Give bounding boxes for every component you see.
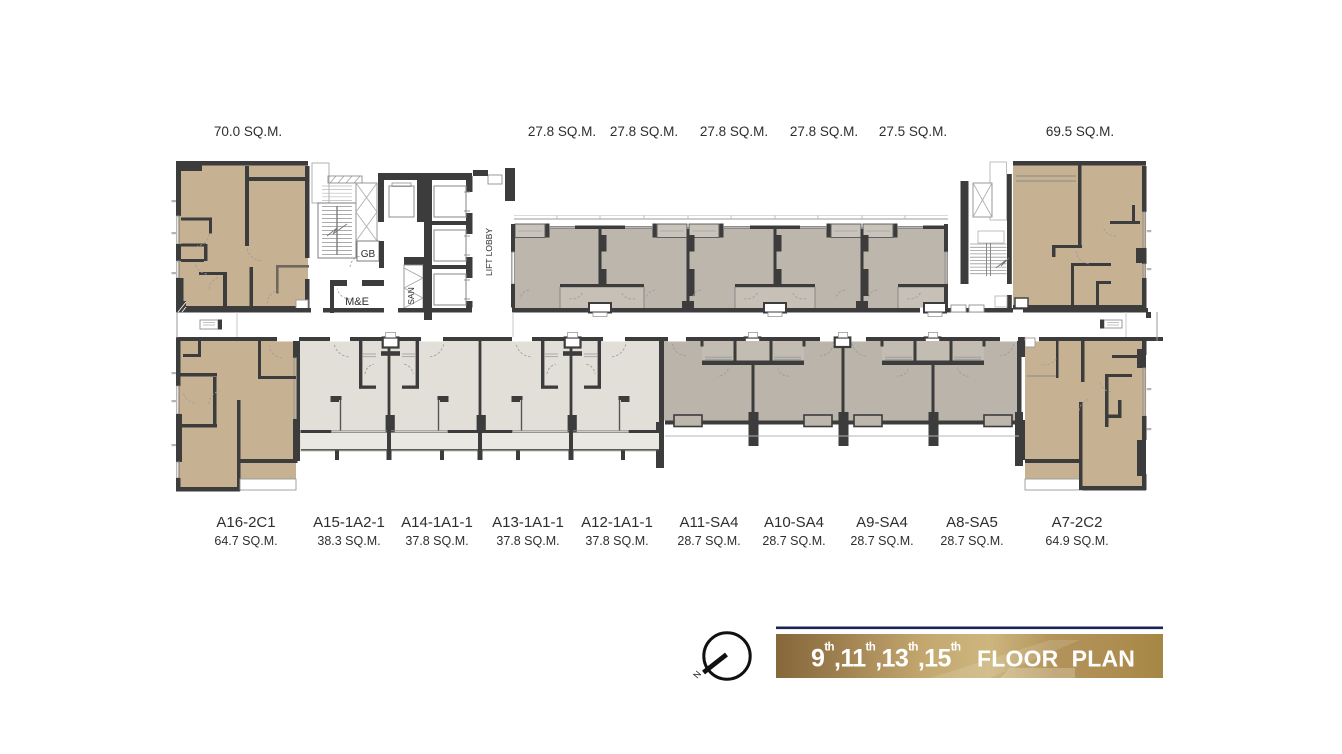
svg-text:FLOOR PLAN: FLOOR PLAN (977, 646, 1135, 672)
svg-text:64.9 SQ.M.: 64.9 SQ.M. (1045, 534, 1108, 548)
svg-text:A16-2C1: A16-2C1 (216, 514, 275, 531)
svg-text:27.8 SQ.M.: 27.8 SQ.M. (790, 124, 858, 139)
svg-text:A15-1A2-1: A15-1A2-1 (313, 514, 385, 531)
svg-text:A7-2C2: A7-2C2 (1052, 514, 1103, 531)
svg-text:28.7 SQ.M.: 28.7 SQ.M. (762, 534, 825, 548)
svg-text:A11-SA4: A11-SA4 (680, 514, 739, 531)
svg-text:28.7 SQ.M.: 28.7 SQ.M. (940, 534, 1003, 548)
svg-text:27.5 SQ.M.: 27.5 SQ.M. (879, 124, 947, 139)
svg-text:GB: GB (361, 249, 376, 260)
svg-text:69.5 SQ.M.: 69.5 SQ.M. (1046, 124, 1114, 139)
svg-text:28.7 SQ.M.: 28.7 SQ.M. (850, 534, 913, 548)
svg-text:27.8 SQ.M.: 27.8 SQ.M. (610, 124, 678, 139)
svg-text:A13-1A1-1: A13-1A1-1 (492, 514, 564, 531)
svg-text:64.7 SQ.M.: 64.7 SQ.M. (214, 534, 277, 548)
svg-text:LIFT LOBBY: LIFT LOBBY (484, 228, 494, 276)
svg-text:37.8 SQ.M.: 37.8 SQ.M. (496, 534, 559, 548)
svg-text:A8-SA5: A8-SA5 (946, 514, 998, 531)
svg-text:A10-SA4: A10-SA4 (764, 514, 824, 531)
svg-text:SAN: SAN (406, 287, 416, 304)
svg-text:M&E: M&E (345, 296, 369, 308)
svg-text:27.8 SQ.M.: 27.8 SQ.M. (700, 124, 768, 139)
svg-text:37.8 SQ.M.: 37.8 SQ.M. (405, 534, 468, 548)
svg-text:9th,11th,13th,15th: 9th,11th,13th,15th (811, 642, 961, 673)
svg-text:37.8 SQ.M.: 37.8 SQ.M. (585, 534, 648, 548)
svg-text:28.7 SQ.M.: 28.7 SQ.M. (677, 534, 740, 548)
svg-text:A14-1A1-1: A14-1A1-1 (401, 514, 473, 531)
svg-text:A9-SA4: A9-SA4 (856, 514, 908, 531)
svg-text:70.0 SQ.M.: 70.0 SQ.M. (214, 124, 282, 139)
svg-text:27.8 SQ.M.: 27.8 SQ.M. (528, 124, 596, 139)
svg-text:A12-1A1-1: A12-1A1-1 (581, 514, 653, 531)
svg-text:38.3 SQ.M.: 38.3 SQ.M. (317, 534, 380, 548)
